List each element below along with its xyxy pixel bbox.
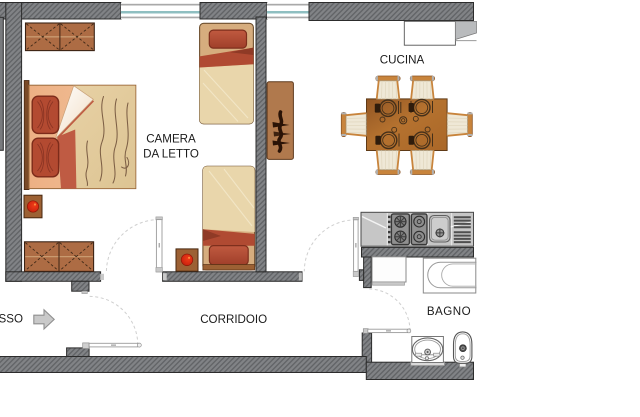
svg-text:CORRIDOIO: CORRIDOIO [200,313,267,326]
svg-text:BAGNO: BAGNO [427,305,471,318]
svg-text:SSO: SSO [0,312,23,325]
svg-text:DA LETTO: DA LETTO [143,147,199,160]
svg-text:CAMERA: CAMERA [146,132,196,145]
svg-text:CUCINA: CUCINA [380,53,425,66]
